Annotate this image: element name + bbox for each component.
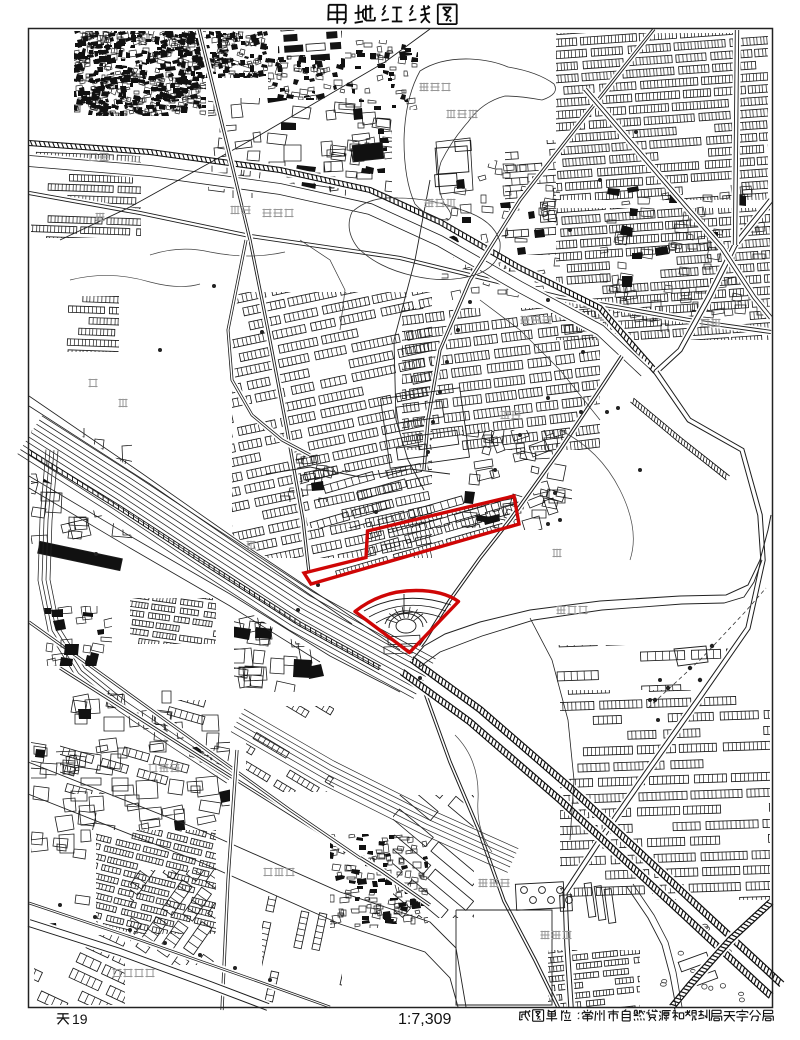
svg-text:1:7,309: 1:7,309 [398, 1011, 451, 1028]
svg-text:19: 19 [72, 1011, 88, 1027]
